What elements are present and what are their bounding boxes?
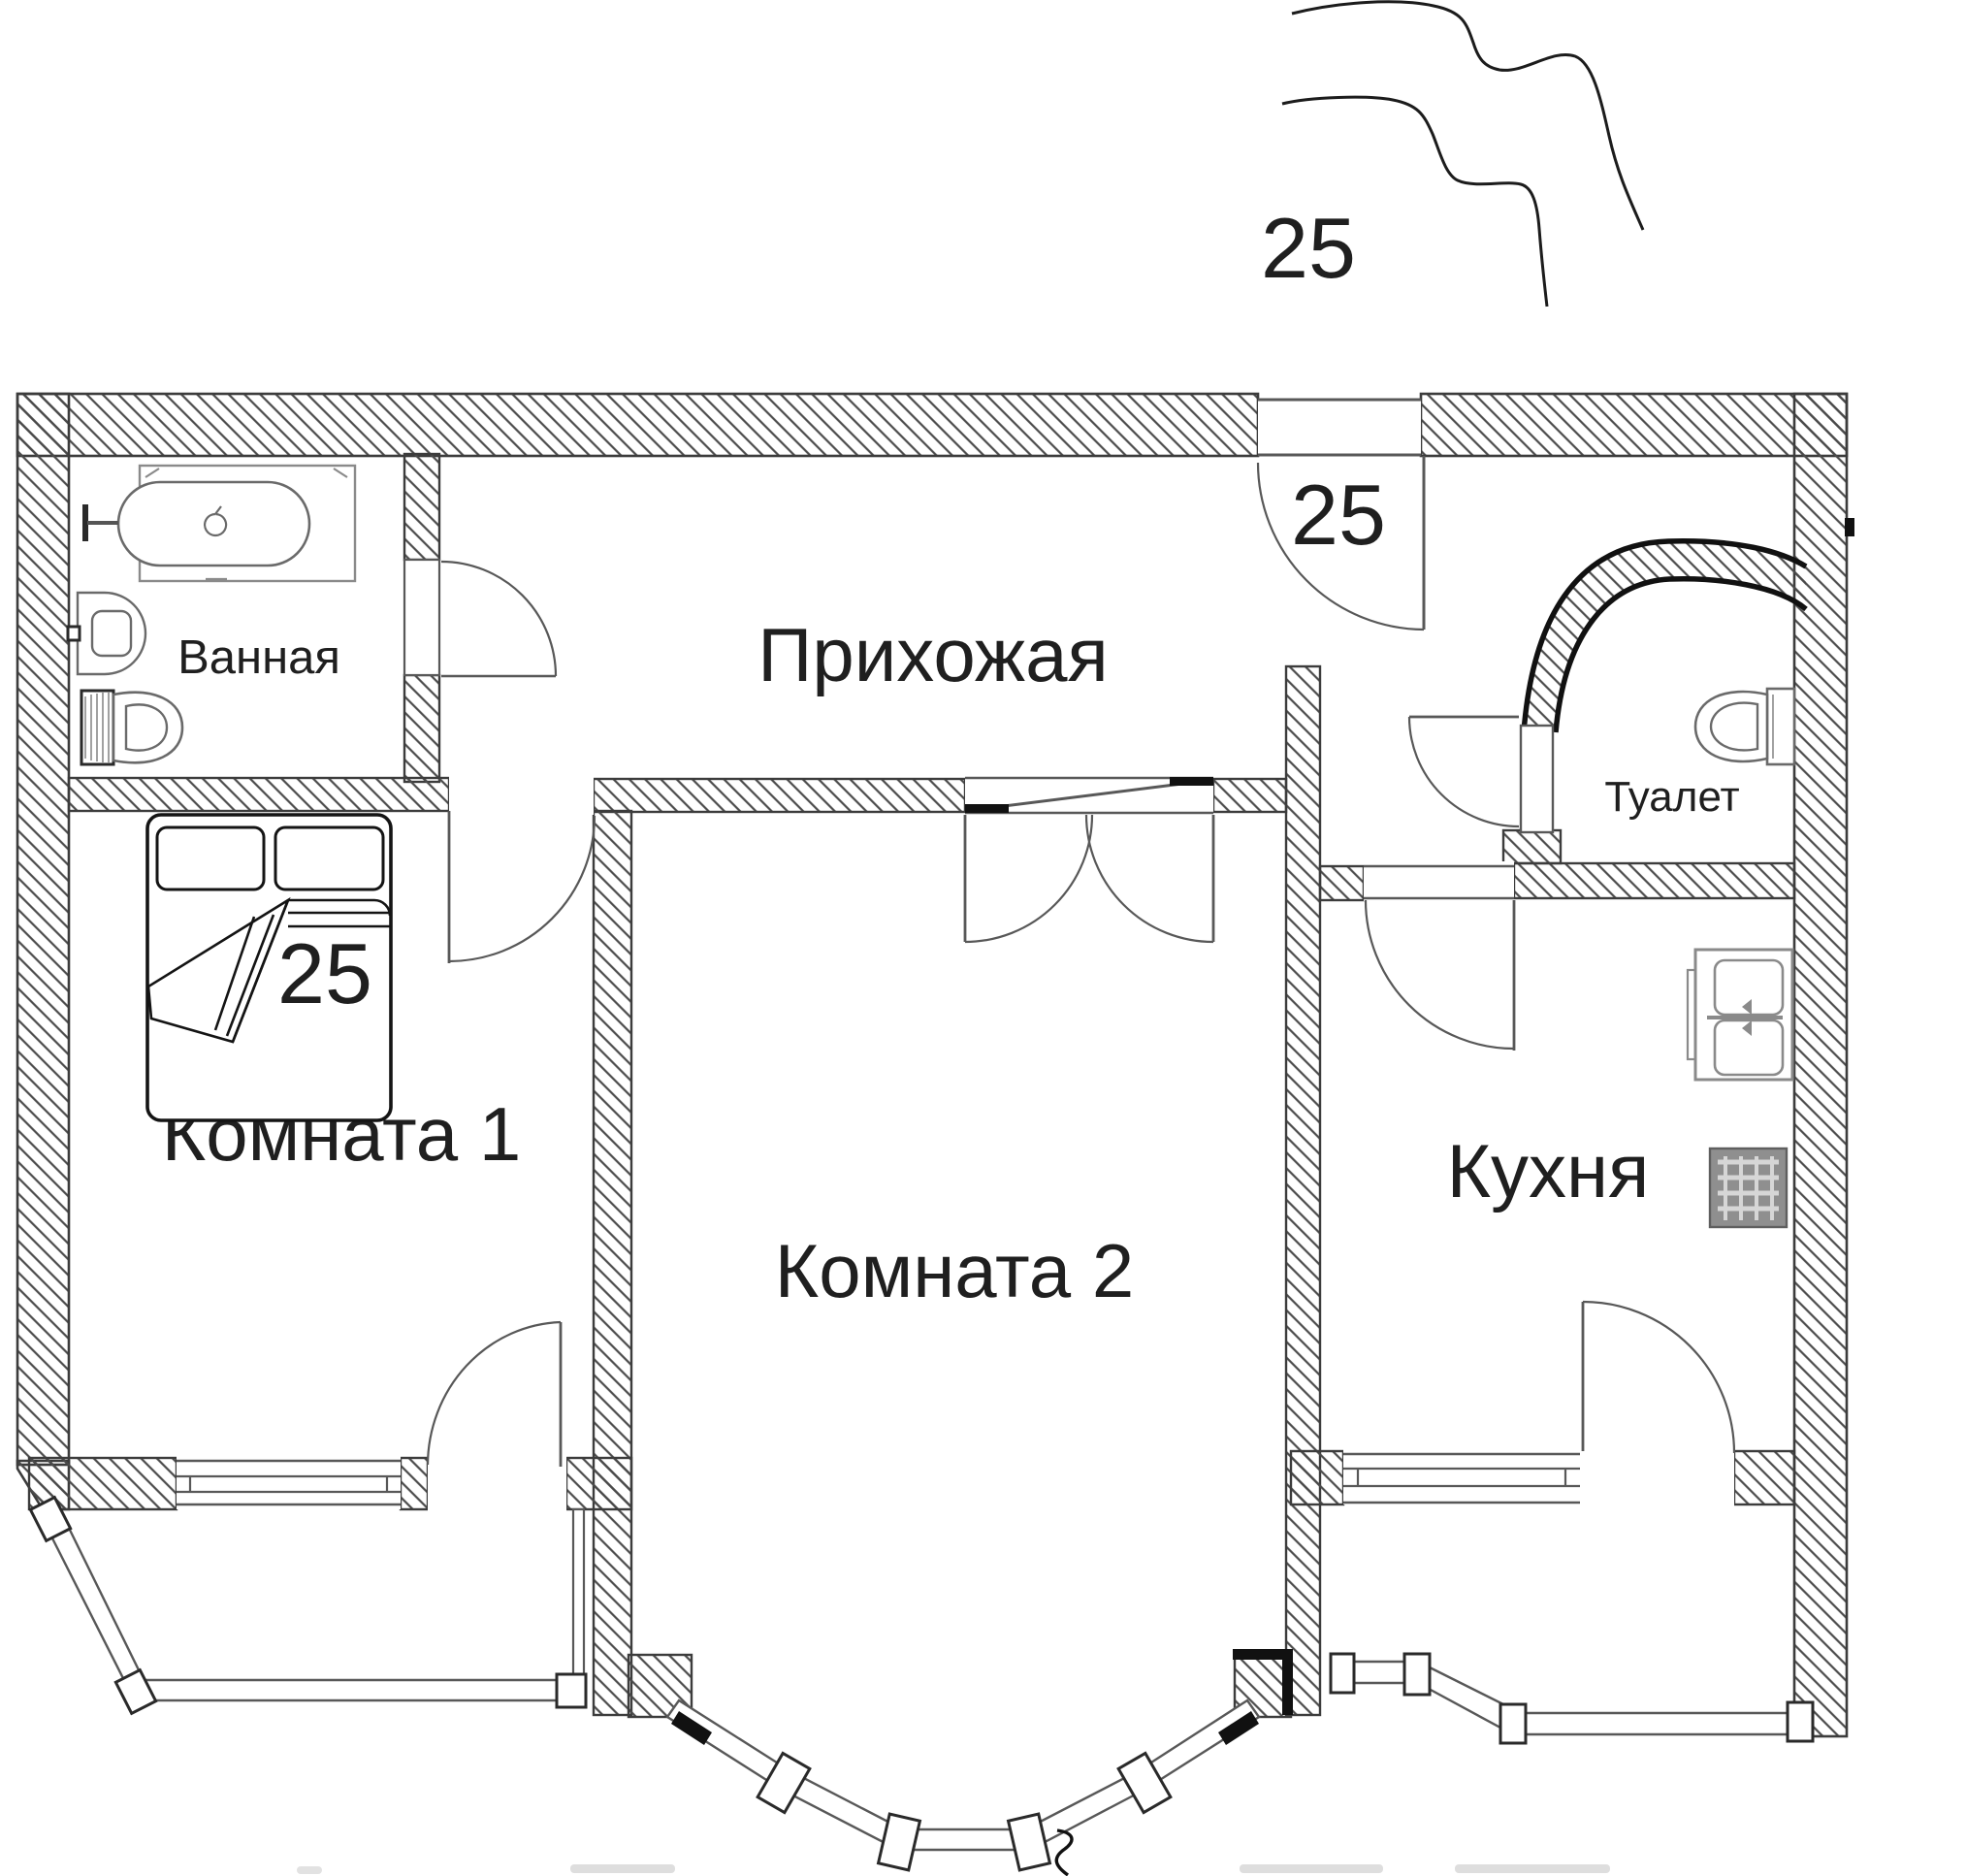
svg-text:Кухня: Кухня: [1447, 1128, 1650, 1213]
svg-text:Ванная: Ванная: [177, 631, 340, 684]
svg-text:25: 25: [277, 925, 372, 1021]
svg-text:Туалет: Туалет: [1604, 773, 1739, 821]
svg-text:25: 25: [1261, 200, 1356, 296]
svg-text:Комната 2: Комната 2: [775, 1228, 1134, 1313]
svg-text:Прихожая: Прихожая: [757, 612, 1108, 697]
svg-text:25: 25: [1291, 467, 1386, 563]
